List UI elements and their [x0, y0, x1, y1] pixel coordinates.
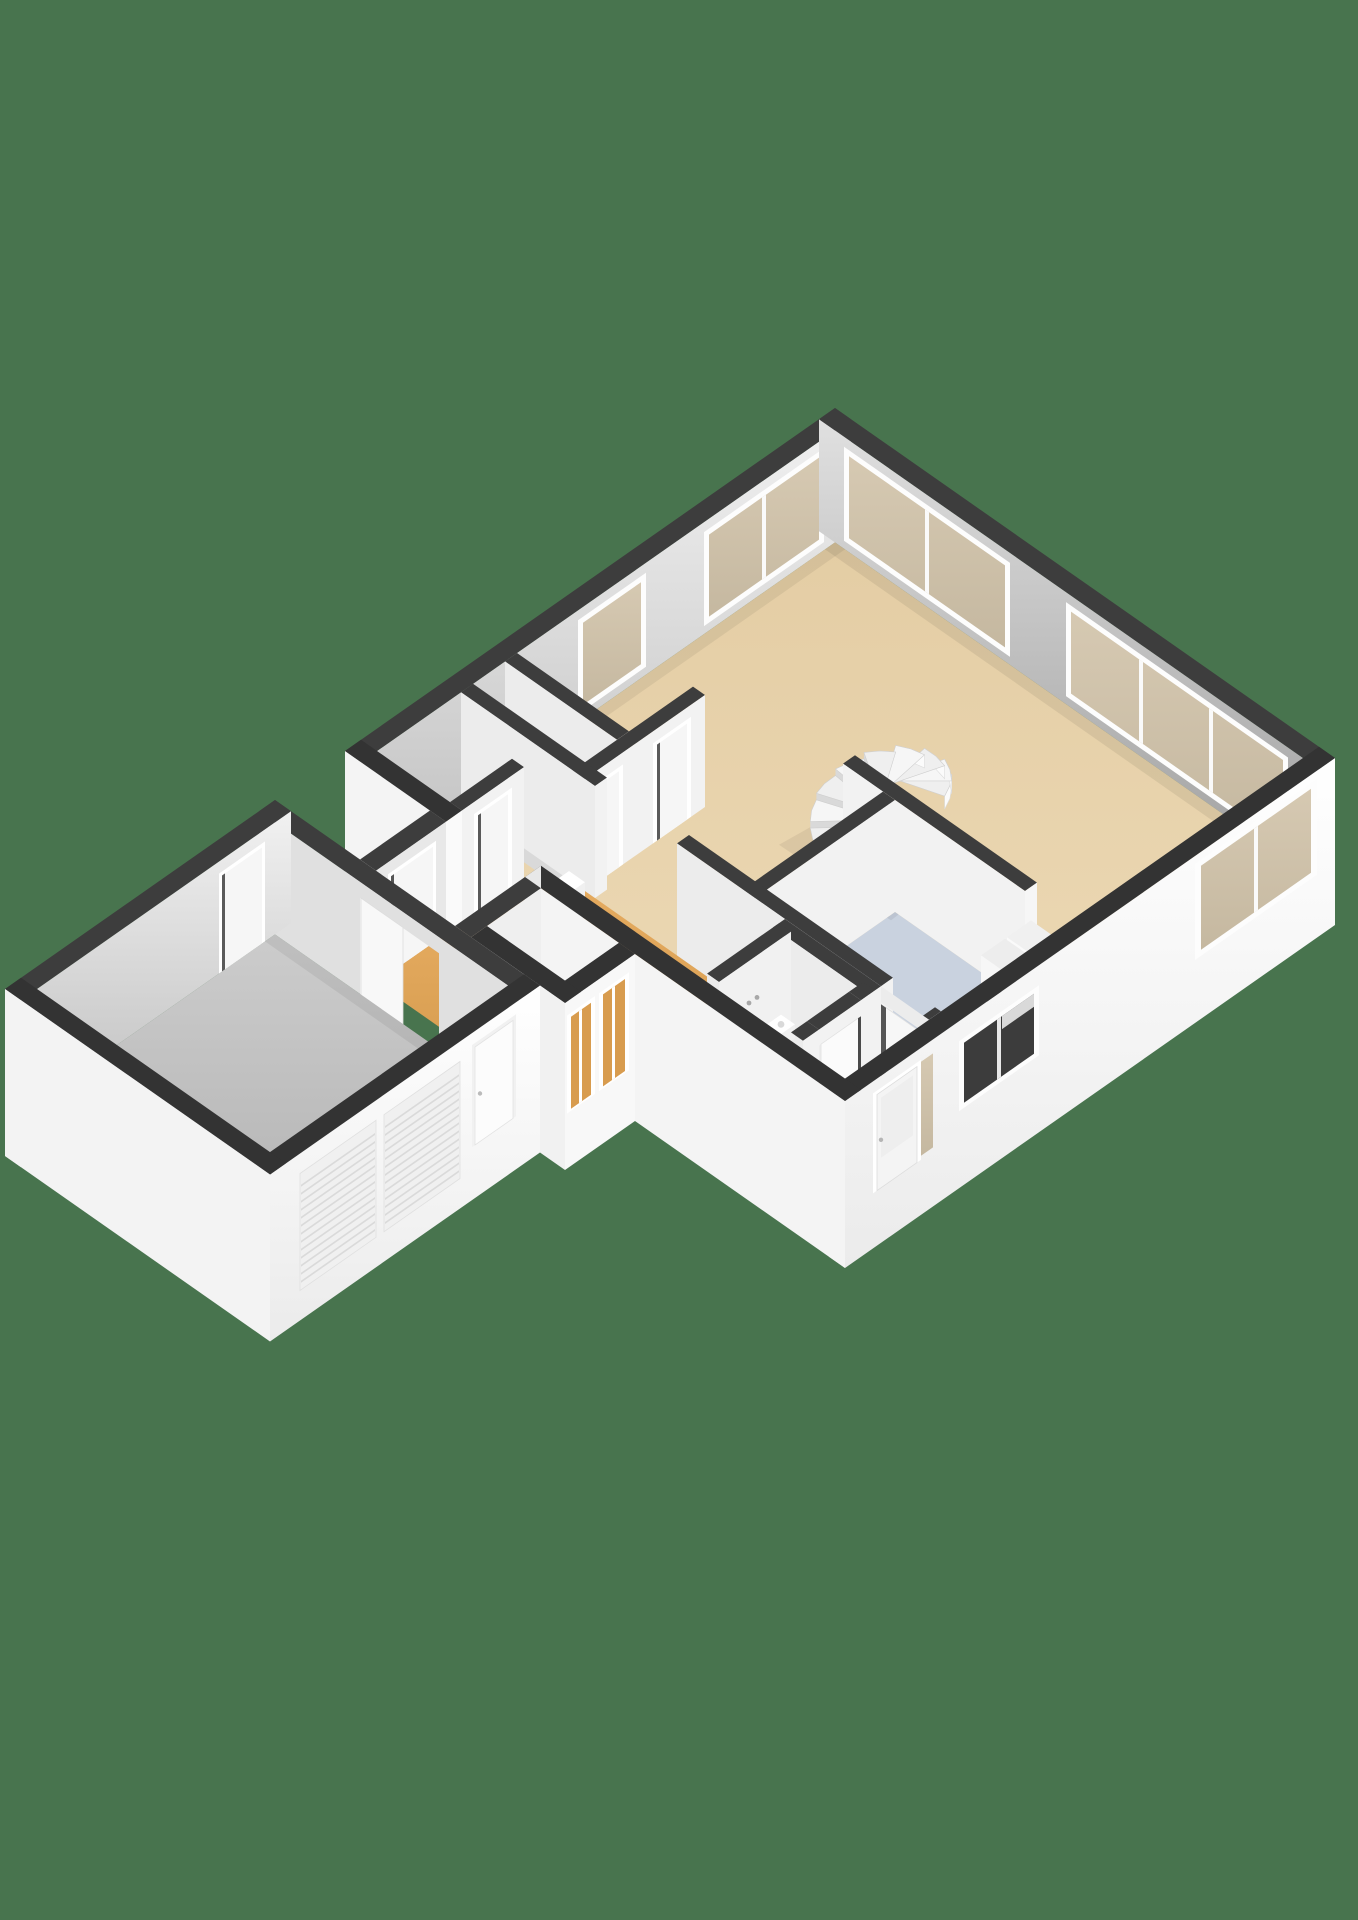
floorplan-canvas[interactable] [0, 0, 1358, 1920]
annex-glass-door-2 [567, 996, 595, 1114]
floorplan-stage [0, 0, 1358, 1920]
